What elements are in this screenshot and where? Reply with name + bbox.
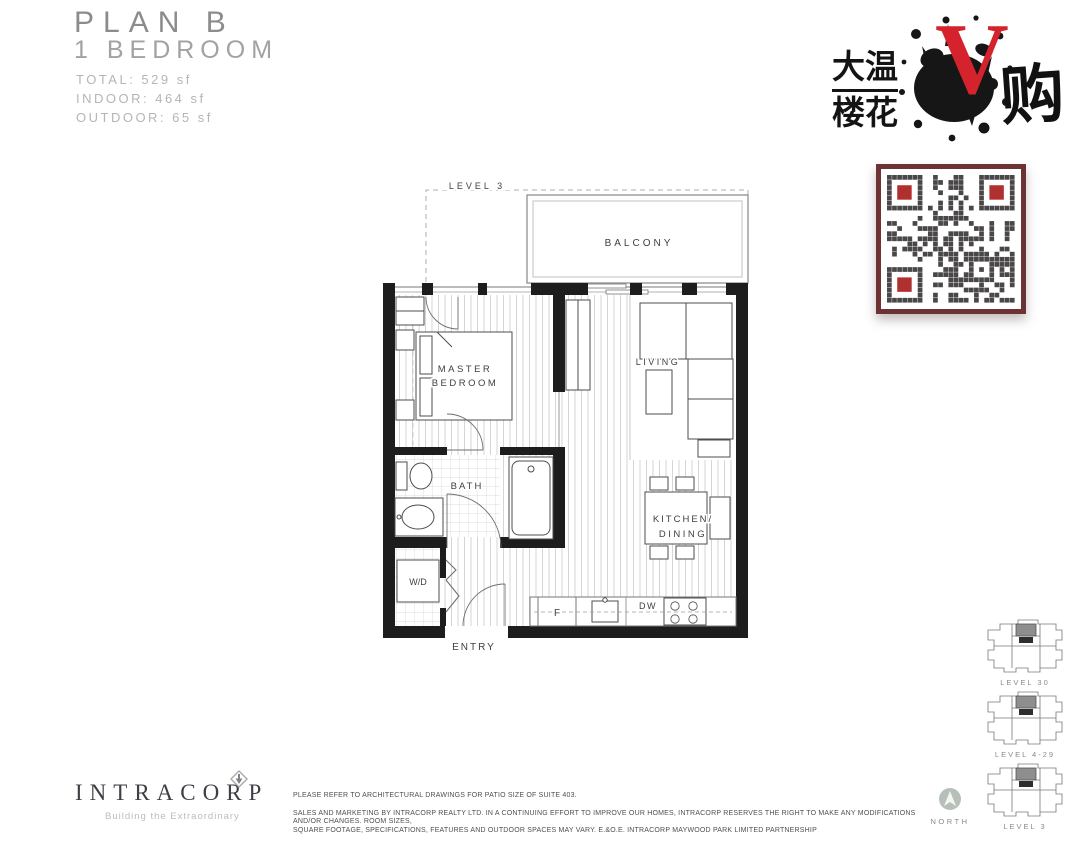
room-label-bath: BATH: [451, 481, 484, 492]
logo-cn-right: 购: [997, 42, 1067, 138]
keyplan-level4-29: [988, 692, 1062, 744]
disclaimer-line-2: SALES AND MARKETING BY INTRACORP REALTY …: [293, 810, 933, 827]
room-label-master-1: MASTER: [438, 364, 493, 375]
floorplan-drawing: LEVEL 3 BALCONY MASTER BEDROOM LIVING BA…: [370, 168, 770, 668]
room-label-wd: W/D: [409, 577, 427, 587]
wechat-brand-logo: V 大温 楼花 购: [826, 0, 1080, 158]
brand-tagline: Building the Extraordinary: [75, 811, 275, 822]
logo-cn-text: 大温 楼花: [832, 46, 898, 134]
disclaimer-line-1: PLEASE REFER TO ARCHITECTURAL DRAWINGS F…: [293, 792, 933, 801]
plan-subtitle: 1 BEDROOM: [74, 36, 278, 65]
plan-title: PLAN B: [74, 6, 235, 40]
room-label-kitchen-2: DINING: [659, 529, 707, 540]
stat-indoor: INDOOR: 464 sf: [76, 89, 213, 108]
stat-outdoor: OUTDOOR: 65 sf: [76, 108, 213, 127]
room-label-master-2: BEDROOM: [432, 378, 499, 389]
logo-cn-top: 大温: [832, 46, 898, 92]
keyplan-column: LEVEL 30 LEVEL 4-29 LEVEL 3: [972, 614, 1076, 842]
room-label-living: LIVING: [636, 357, 681, 367]
logo-cn-bottom: 楼花: [832, 92, 898, 134]
keyplan-label-level4-29: LEVEL 4-29: [995, 750, 1055, 759]
north-indicator: NORTH: [926, 784, 974, 830]
room-label-kitchen-1: KITCHEN/: [653, 514, 713, 525]
intracorp-brand: INTRACORP Building the Extraordinary: [75, 780, 275, 822]
qr-code: [876, 164, 1026, 314]
keyplan-level30: [988, 620, 1062, 672]
north-label: NORTH: [930, 817, 969, 826]
room-label-entry: ENTRY: [452, 642, 496, 653]
disclaimer-text: PLEASE REFER TO ARCHITECTURAL DRAWINGS F…: [293, 792, 933, 835]
intracorp-diamond-icon: [228, 768, 250, 792]
keyplan-label-level3: LEVEL 3: [1003, 822, 1046, 831]
stat-total: TOTAL: 529 sf: [76, 70, 213, 89]
keyplan-label-level30: LEVEL 30: [1000, 678, 1050, 687]
plan-stats: TOTAL: 529 sf INDOOR: 464 sf OUTDOOR: 65…: [76, 70, 213, 127]
appliance-label-fridge: F: [554, 608, 560, 619]
room-label-balcony: BALCONY: [605, 238, 674, 249]
room-label-level3: LEVEL 3: [449, 181, 505, 191]
floorplan-flyer-page: PLAN B 1 BEDROOM TOTAL: 529 sf INDOOR: 4…: [0, 0, 1080, 846]
keyplan-level3: [988, 764, 1062, 816]
appliance-label-dw: DW: [639, 601, 657, 611]
disclaimer-line-3: SQUARE FOOTAGE, SPECIFICATIONS, FEATURES…: [293, 827, 933, 836]
